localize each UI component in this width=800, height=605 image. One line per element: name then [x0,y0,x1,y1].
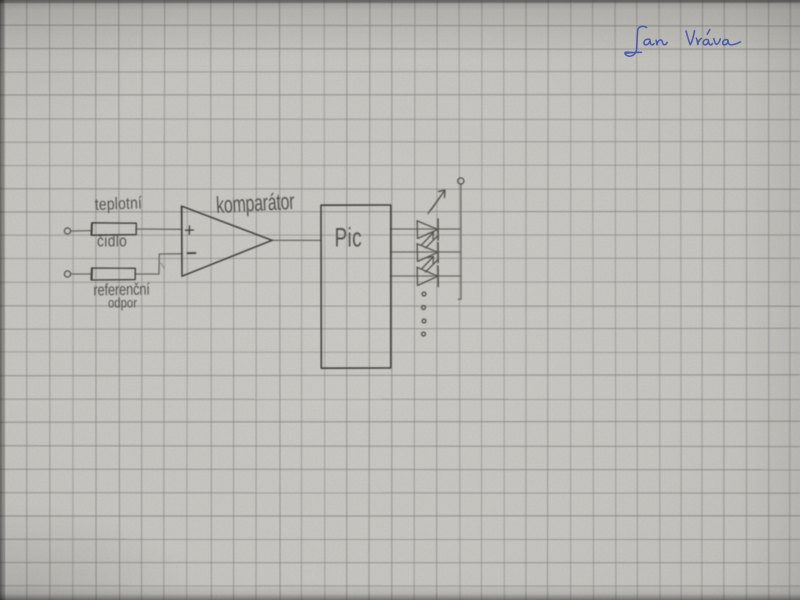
svg-text:komparátor: komparátor [215,189,295,219]
svg-text:teplotní: teplotní [95,194,143,214]
svg-text:čidlo: čidlo [97,233,127,251]
svg-text:odpor: odpor [108,294,138,311]
svg-text:Pic: Pic [335,222,363,252]
